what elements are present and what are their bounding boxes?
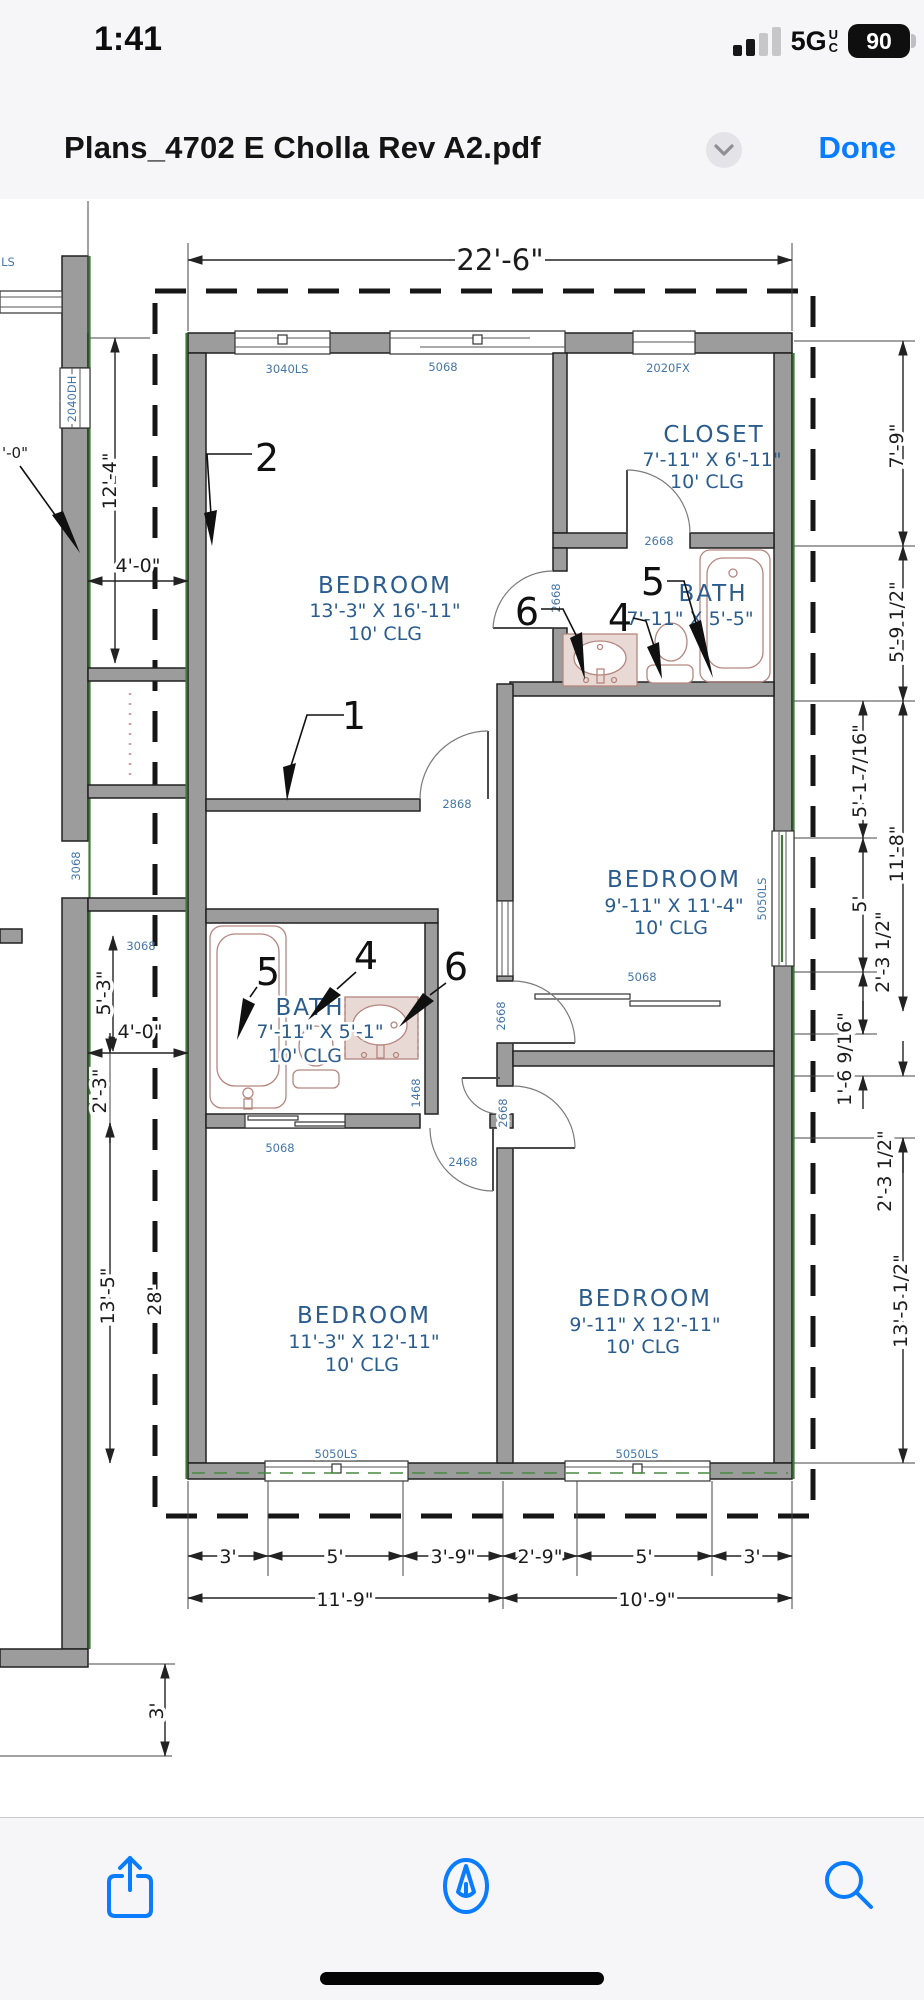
dim-left-7: 3' [146,1702,168,1719]
dim-bottom-5: 3' [743,1546,760,1568]
dim-bottom-2: 3'-9" [431,1546,476,1568]
bottom-toolbar [0,1817,924,2000]
label-2020fx: 2020FX [646,361,690,375]
dim-right-2: 5'-1 7/16" [849,724,871,818]
label-5050ls-bl: 5050LS [315,1447,358,1461]
iphone-screen: 1:41 5G U C 90 Plans_4702 E Cholla Rev A… [0,0,924,2000]
network-5g-label: 5G [791,26,827,56]
window-5050ls-bottom-left [265,1461,408,1481]
label-3068-door: 3068 [69,851,83,880]
battery-icon: 90 [848,24,910,58]
dim-left-0: 12'-4" [99,452,121,509]
status-right-cluster: 5G U C 90 [733,24,910,58]
title-dropdown-button[interactable] [706,132,742,168]
dim-bottom-3: 2'-9" [518,1546,563,1568]
door-1468-linen [462,1078,500,1114]
label-5068-mid-closet: 5068 [627,970,656,984]
share-icon [98,1852,162,1922]
dim-left-5: 13'-5" [97,1267,119,1324]
dim-overall-width: 22'-6" [456,243,543,277]
label-2668-closet: 2668 [644,534,673,548]
label-5068-bed3-closet: 5068 [265,1141,294,1155]
search-button[interactable] [816,1852,880,1922]
dim-right-3: 11'-8" [886,825,908,882]
room-labels: BEDROOM 13'-3" X 16'-11" 10' CLG CLOSET … [256,422,781,1376]
dim-bottom-4: 5' [635,1546,652,1568]
room-closet-name: CLOSET [663,422,764,448]
room-bath1-name: BATH [678,581,747,607]
callout-5-top: 5 [641,560,665,604]
label-2468: 2468 [448,1155,477,1169]
dim-bottom-total-0: 11'-9" [316,1589,373,1611]
window-2020fx [633,331,695,354]
label-1468: 1468 [409,1078,423,1107]
label-2040dh: 2040DH [65,376,79,423]
window-5050ls-right [772,831,794,966]
label-2668-hall-b: 2668 [496,1098,510,1127]
dim-bottom-1: 5' [326,1546,343,1568]
room-bedroom2-clg: 10' CLG [634,917,708,939]
room-bath2-size: 7'-11" X 5'-1" [256,1021,383,1043]
dim-right-1: 5'-9 1/2" [886,581,908,663]
room-bedroom4-name: BEDROOM [578,1286,712,1312]
label-3040ls: 3040LS [266,362,309,376]
callout-4-mid: 4 [354,934,378,978]
markup-pen-icon [434,1852,498,1922]
top-chrome: 1:41 5G U C 90 Plans_4702 E Cholla Rev A… [0,0,924,200]
label-5050ls-right: 5050LS [755,878,769,921]
dim-bottom-total-1: 10'-9" [618,1589,675,1611]
network-type-indicator: 5G U C [791,26,838,56]
document-title: Plans_4702 E Cholla Rev A2.pdf [64,130,541,166]
pdf-page[interactable]: 22'-6" 12'-4" 4'-0" 5'-3" 4'-0" 2'-3" 13… [0,199,924,1817]
room-bedroom4-clg: 10' CLG [606,1336,680,1358]
callout-6-top: 6 [515,590,539,634]
keynote-callouts: 2 1 6 4 5 5 4 6 [20,436,713,1040]
room-bedroom2-size: 9'-11" X 11'-4" [604,895,743,917]
room-closet-size: 7'-11" X 6'-11" [642,449,781,471]
window-partial-ls [0,291,62,313]
room-closet-clg: 10' CLG [670,471,744,493]
window-5050ls-bottom-right [565,1461,710,1481]
door-2668-hall-b [513,1086,575,1148]
room-bedroom3-name: BEDROOM [297,1303,431,1329]
window-3040ls [235,331,330,354]
dim-left-1: 4'-0" [116,555,161,577]
door-2668-hall-a [513,981,575,1043]
dim-left-3: 4'-0" [118,1021,163,1043]
status-time: 1:41 [94,20,162,59]
battery-percent: 90 [866,28,892,55]
dim-right-5: 2'-3 1/2" [872,911,894,993]
dim-right-0: 7'-9" [886,424,908,469]
dim-left-4: 2'-3" [89,1069,111,1114]
room-bedroom1-name: BEDROOM [318,573,452,599]
callout-6-mid: 6 [444,945,468,989]
room-bedroom3-clg: 10' CLG [325,1354,399,1376]
label-3068-h: 3068 [126,939,155,953]
room-bedroom4-size: 9'-11" X 12'-11" [569,1314,720,1336]
label-2668-hall-a: 2668 [494,1001,508,1030]
dim-right-7: 2'-3 1/2" [874,1130,896,1212]
dim-bottom-0: 3' [219,1546,236,1568]
window-5068-top [390,331,565,354]
floor-plan-drawing: 22'-6" 12'-4" 4'-0" 5'-3" 4'-0" 2'-3" 13… [0,199,924,1817]
door-2868-bedroom1 [420,731,488,799]
room-bedroom2-name: BEDROOM [607,867,741,893]
room-bedroom3-size: 11'-3" X 12'-11" [288,1331,439,1353]
room-bedroom1-clg: 10' CLG [348,623,422,645]
dim-left-partial: '-0" [2,444,28,462]
dim-left-2: 5'-3" [93,971,115,1016]
share-button[interactable] [98,1852,162,1922]
dim-right-4: 5' [849,895,871,912]
callout-1: 1 [342,694,366,738]
dim-right-8: 13'-5 1/2" [890,1254,912,1348]
label-ls-partial: LS [1,255,15,269]
room-bath2-clg: 10' CLG [268,1045,342,1067]
label-2868: 2868 [442,797,471,811]
dim-right-6: 1'-6 9/16" [834,1012,856,1106]
markup-button[interactable] [434,1852,498,1922]
dim-left-6: 28' [144,1286,166,1315]
done-button[interactable]: Done [819,130,897,166]
home-indicator[interactable] [320,1972,604,1985]
callout-5-mid: 5 [256,950,280,994]
callout-2: 2 [255,436,279,480]
chevron-down-icon [714,143,734,157]
room-bedroom1-size: 13'-3" X 16'-11" [309,600,460,622]
callout-4-top: 4 [608,596,632,640]
label-5050ls-br: 5050LS [616,1447,659,1461]
label-5068-top: 5068 [428,360,457,374]
cellular-signal-icon [733,26,781,56]
adjacent-structure-walls [0,256,188,1667]
network-qualifier-bottom: C [829,41,838,54]
search-icon [816,1852,880,1922]
